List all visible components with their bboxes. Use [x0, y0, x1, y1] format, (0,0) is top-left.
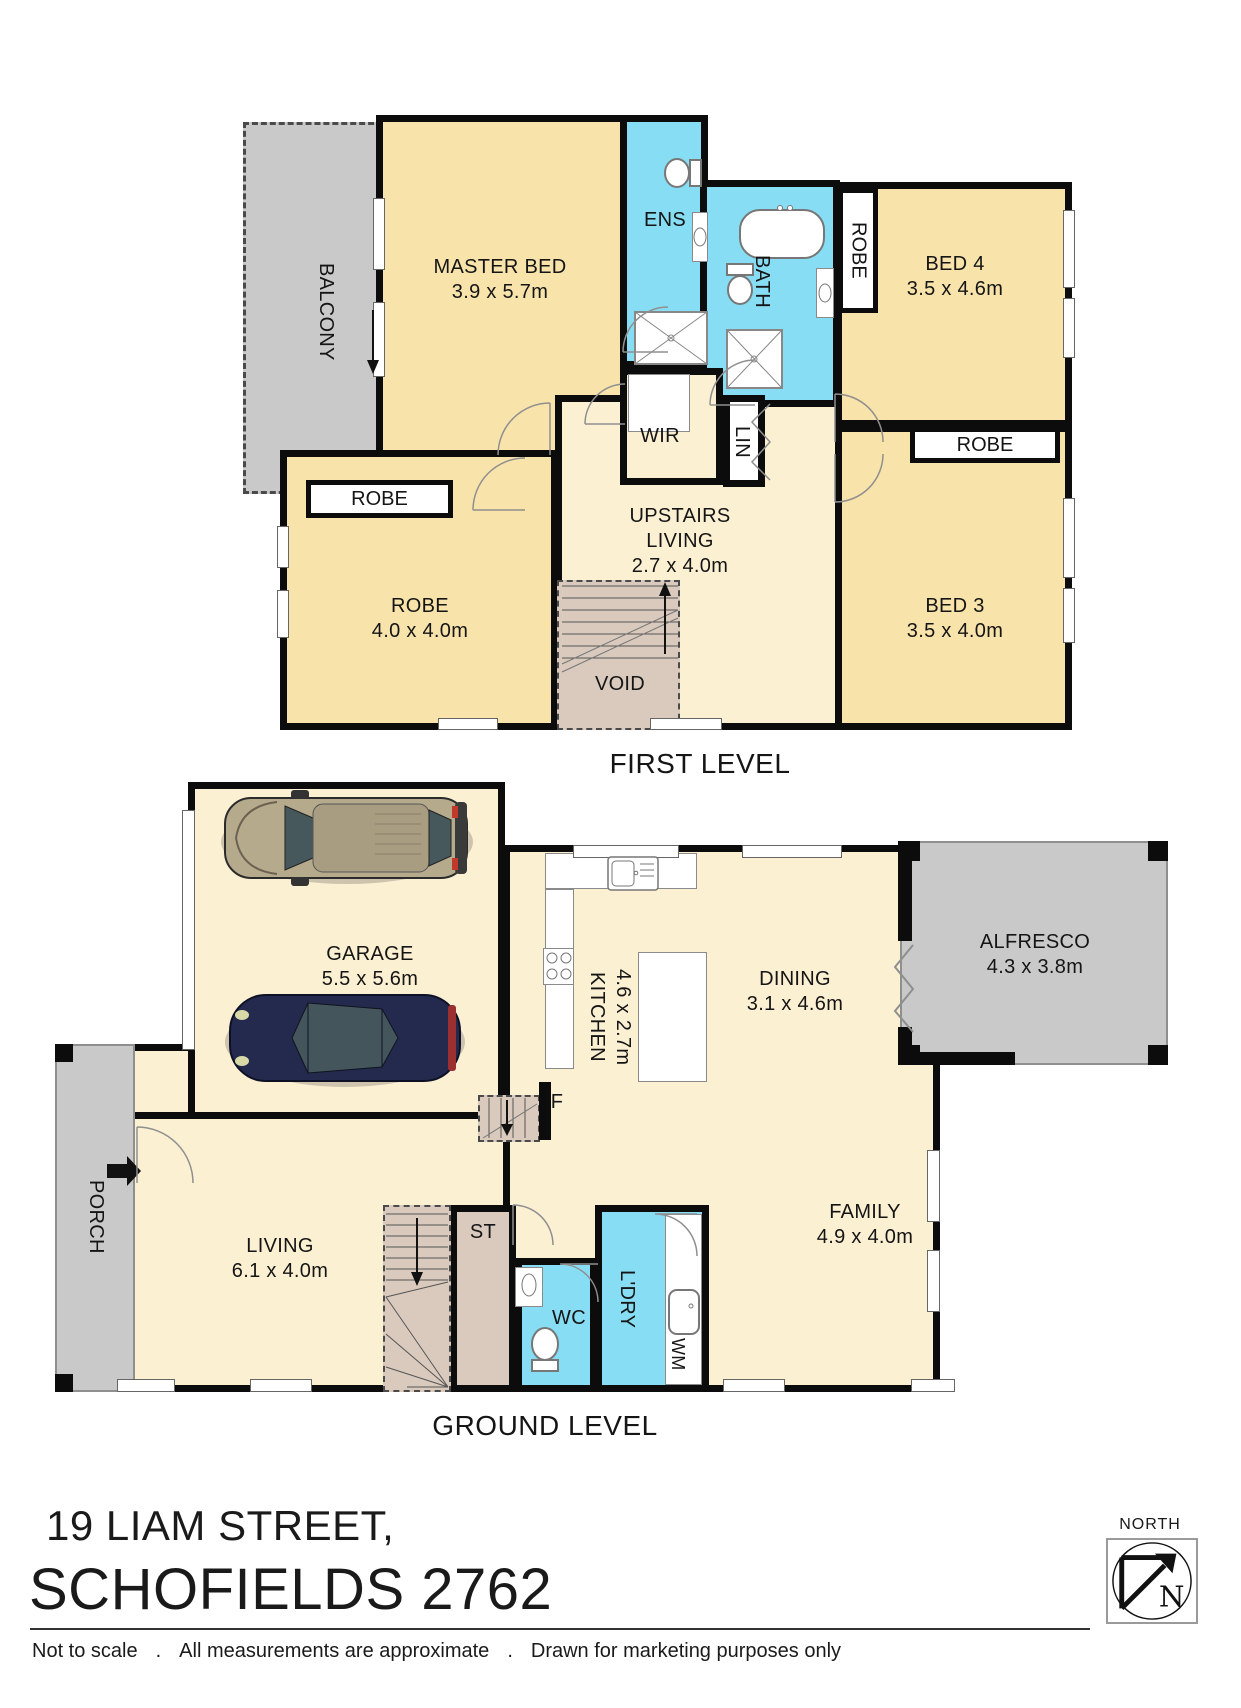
fridge-label: F — [545, 1090, 569, 1115]
window — [1063, 298, 1075, 358]
robe-room-robe-box: ROBE — [306, 480, 453, 518]
kitchen-label: KITCHEN — [583, 952, 609, 1082]
porch-post — [55, 1044, 73, 1062]
window — [277, 590, 289, 638]
window — [438, 718, 498, 730]
storage-label: ST — [457, 1220, 509, 1245]
address-line1: 19 LIAM STREET, — [46, 1502, 394, 1550]
window — [911, 1379, 955, 1392]
wc-vanity — [515, 1267, 543, 1307]
window — [117, 1379, 175, 1392]
ground-stairs — [383, 1205, 451, 1392]
linen-label: LIN — [728, 412, 754, 472]
window — [927, 1250, 940, 1312]
alfresco-base-wall — [898, 1052, 1015, 1065]
ground-level-title: GROUND LEVEL — [385, 1410, 705, 1442]
compass-n-letter: N — [1159, 1579, 1185, 1613]
bath-label: BATH — [748, 232, 774, 332]
address-line2: SCHOFIELDS 2762 — [29, 1556, 552, 1623]
north-compass: N — [1106, 1538, 1198, 1624]
stove-icon — [543, 948, 574, 985]
window — [250, 1379, 312, 1392]
ensuite-label: ENS — [625, 208, 705, 233]
family-dims: 4.9 x 4.0m — [790, 1225, 940, 1250]
dining-dims: 3.1 x 4.6m — [720, 992, 870, 1017]
window — [1063, 498, 1075, 578]
first-level-plan: ROBE ROBE ROBE — [240, 112, 1072, 730]
master-bed-label: MASTER BED 3.9 x 5.7m — [400, 255, 600, 305]
kitchen-counter — [545, 853, 697, 889]
window — [1063, 210, 1075, 288]
alfresco-dims: 4.3 x 3.8m — [960, 955, 1110, 980]
window — [742, 845, 842, 858]
living-dims: 6.1 x 4.0m — [205, 1259, 355, 1284]
robe-room-label: ROBE 4.0 x 4.0m — [350, 594, 490, 644]
disclaimer: Not to scale.All measurements are approx… — [32, 1640, 1112, 1663]
porch-label: PORCH — [82, 1142, 108, 1292]
floor-plan-canvas: ROBE ROBE ROBE — [0, 0, 1241, 1708]
alfresco-post — [1148, 1045, 1168, 1065]
window — [573, 845, 679, 858]
bed4-label: BED 4 3.5 x 4.6m — [860, 252, 1050, 302]
stairs-void-block — [557, 580, 680, 730]
window — [182, 810, 195, 1050]
garage-dims: 5.5 x 5.6m — [295, 967, 445, 992]
living-label: LIVING 6.1 x 4.0m — [205, 1234, 355, 1284]
porch-post — [55, 1374, 73, 1392]
dining-label: DINING 3.1 x 4.6m — [720, 967, 870, 1017]
bed3-robe-label: ROBE — [957, 434, 1014, 457]
wc-label: WC — [547, 1306, 591, 1331]
bed3-dims: 3.5 x 4.0m — [860, 619, 1050, 644]
ground-level-plan: GARAGE 5.5 x 5.6m KITCHEN 4.6 x 2.7m DIN… — [55, 782, 1170, 1392]
balcony-label: BALCONY — [288, 227, 338, 397]
void-label: VOID — [570, 672, 670, 697]
window — [373, 198, 385, 270]
upstairs-living-label: UPSTAIRS LIVING 2.7 x 4.0m — [600, 504, 760, 579]
wir-label: WIR — [630, 424, 690, 449]
alfresco-label: ALFRESCO 4.3 x 3.8m — [960, 930, 1110, 980]
upstairs-living-dims: 2.7 x 4.0m — [600, 554, 760, 579]
dining-alfresco-wall — [898, 841, 912, 941]
footer-divider — [30, 1628, 1090, 1630]
family-label: FAMILY 4.9 x 4.0m — [790, 1200, 940, 1250]
bed3-label: BED 3 3.5 x 4.0m — [860, 594, 1050, 644]
window — [373, 302, 385, 377]
window — [723, 1379, 785, 1392]
ground-stairs-lower-flight — [478, 1095, 540, 1142]
kitchen-dims: 4.6 x 2.7m — [609, 952, 635, 1082]
window — [1063, 588, 1075, 643]
laundry-label: L'DRY — [613, 1252, 639, 1347]
alfresco-post — [1148, 841, 1168, 861]
bath-vanity — [816, 268, 834, 318]
first-level-title: FIRST LEVEL — [540, 748, 860, 780]
robe-room-robe-label: ROBE — [351, 488, 408, 511]
kitchen-island — [638, 952, 707, 1082]
washing-machine-label: WM — [667, 1327, 689, 1382]
master-bed-dims: 3.9 x 5.7m — [400, 280, 600, 305]
window — [650, 718, 722, 730]
bed3-robe-box: ROBE — [910, 427, 1060, 463]
north-label: NORTH — [1100, 1516, 1200, 1534]
robe-room-dims: 4.0 x 4.0m — [350, 619, 490, 644]
garage-label: GARAGE 5.5 x 5.6m — [295, 942, 445, 992]
room-bed3 — [835, 425, 1072, 730]
window — [277, 526, 289, 568]
bed4-dims: 3.5 x 4.6m — [860, 277, 1050, 302]
